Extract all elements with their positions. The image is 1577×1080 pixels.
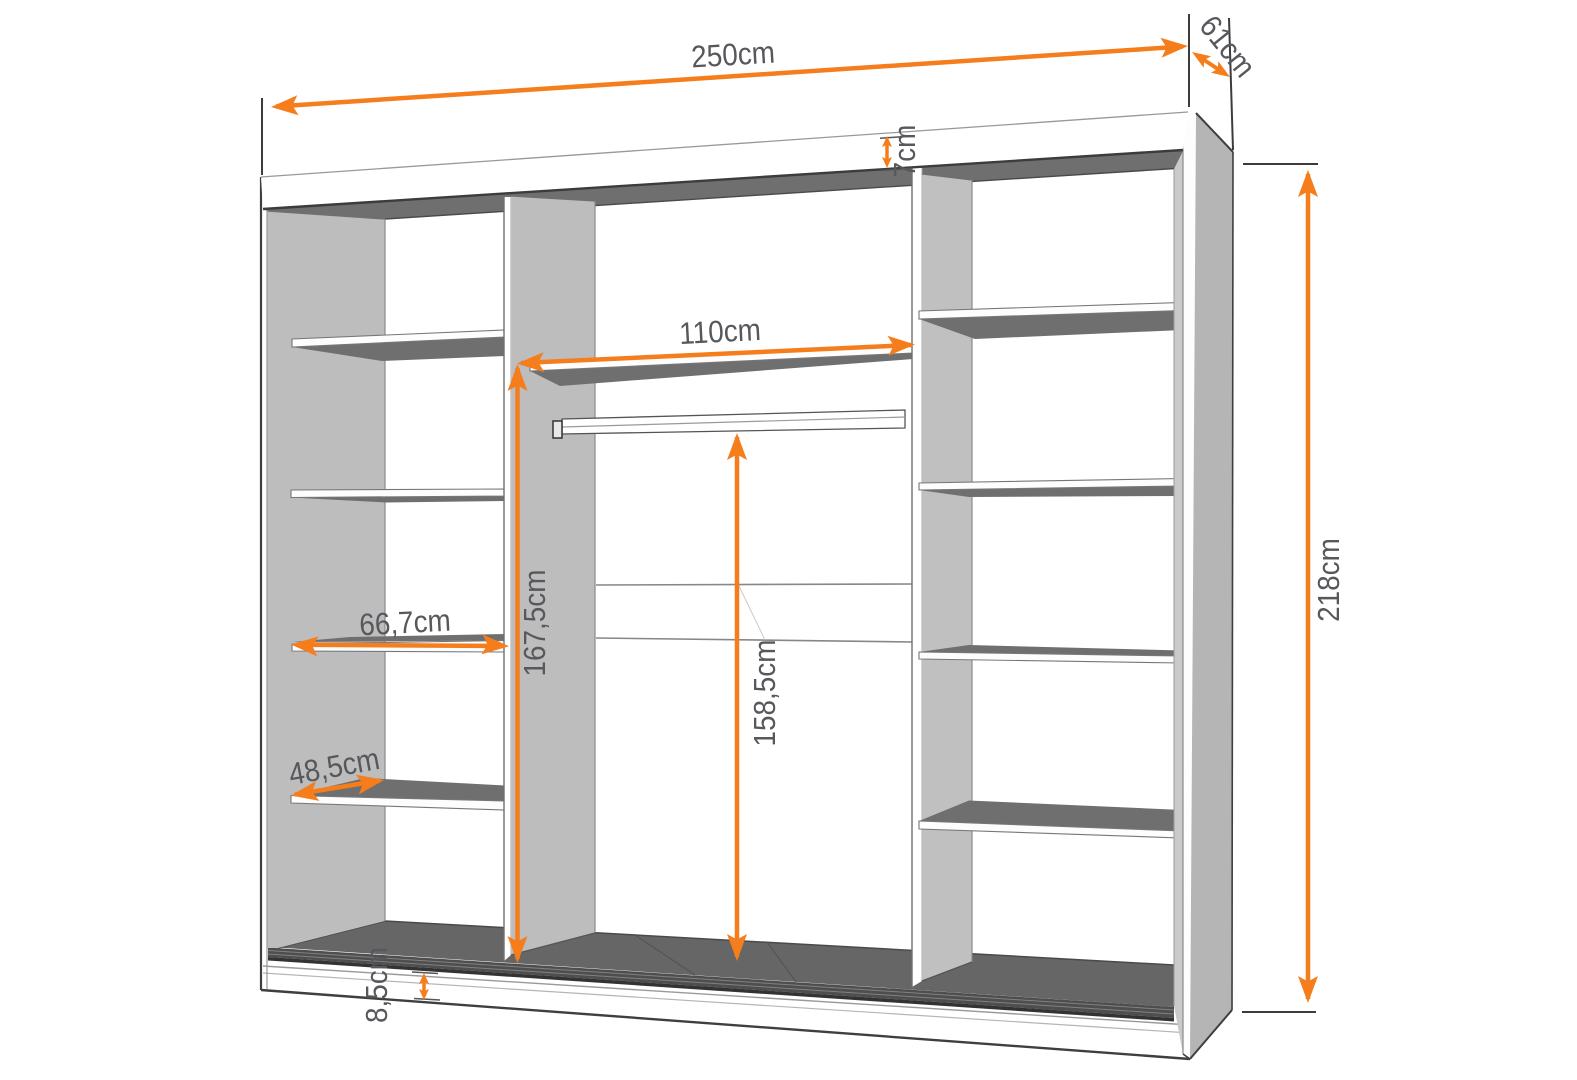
svg-text:250cm: 250cm	[690, 35, 776, 75]
svg-text:66,7cm: 66,7cm	[358, 603, 451, 642]
svg-text:167,5cm: 167,5cm	[518, 570, 553, 677]
svg-text:110cm: 110cm	[678, 313, 761, 352]
svg-text:158,5cm: 158,5cm	[748, 640, 783, 747]
svg-text:218cm: 218cm	[1312, 538, 1347, 622]
svg-text:7cm: 7cm	[888, 125, 923, 178]
svg-text:8,5cm: 8,5cm	[360, 947, 395, 1023]
